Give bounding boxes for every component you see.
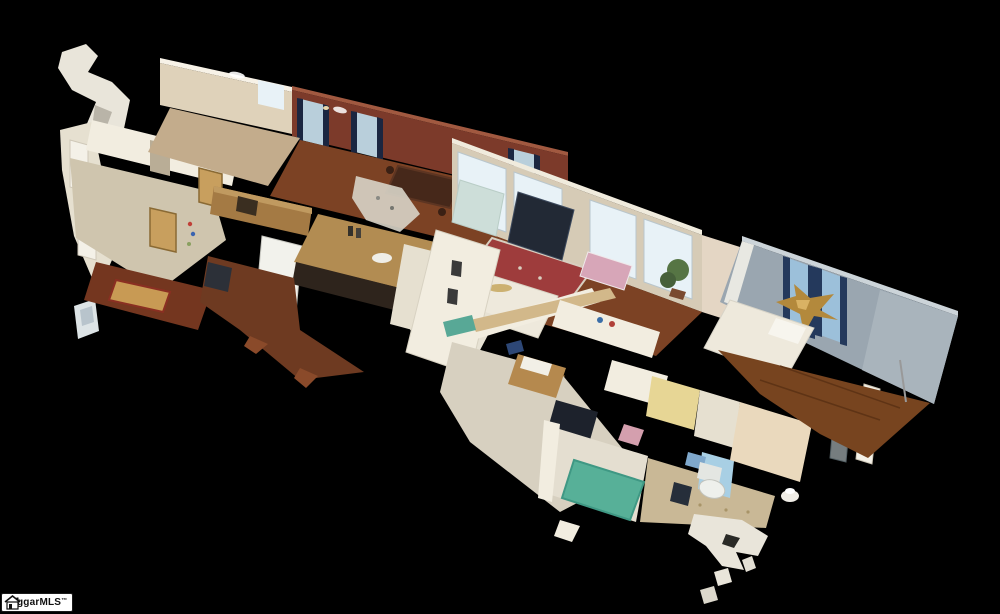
- curtain-maroon-1r: [323, 104, 329, 148]
- curtain-maroon-2l: [351, 111, 357, 153]
- shelf-item-blue: [597, 317, 603, 323]
- watermark-text: ggarMLS™: [17, 598, 67, 608]
- dining-chair-1: [386, 166, 394, 174]
- curtain-maroon-2r: [377, 117, 383, 160]
- gray-curtain-2r: [840, 276, 847, 346]
- dollhouse-3d-view[interactable]: [0, 0, 1000, 614]
- watermark-logo: ggarMLS™: [1, 593, 73, 612]
- rug-motif-2: [538, 276, 542, 280]
- panel-art-frame-1: [451, 260, 462, 277]
- shelf-item-red: [609, 321, 615, 327]
- window-maroon-1: [301, 99, 325, 146]
- toilet-paper-roll: [785, 488, 795, 494]
- curtain-maroon-1l: [297, 98, 303, 141]
- mosaic-dot-2: [724, 508, 727, 511]
- potted-plant-2: [660, 272, 676, 288]
- scanner-artifact-green: [187, 242, 191, 246]
- rug-motif-1: [518, 266, 522, 270]
- window-maroon-2: [355, 112, 379, 158]
- scanner-artifact-blue: [191, 232, 195, 236]
- panel-art-frame-2: [447, 288, 458, 305]
- island-bottle-1: [348, 226, 353, 236]
- clutter-dot-1: [376, 196, 380, 200]
- dining-chair-3: [438, 208, 446, 216]
- watermark-tm: ™: [61, 598, 67, 604]
- oak-door-2: [150, 208, 176, 252]
- mosaic-dot-1: [698, 503, 701, 506]
- wall-sconce-glint: [323, 106, 329, 110]
- scanner-artifact-red: [188, 222, 192, 226]
- clutter-dot-2: [390, 206, 394, 210]
- island-bottle-2: [356, 228, 361, 238]
- island-bowl: [372, 253, 392, 263]
- screenshot-stage: ggarMLS™: [0, 0, 1000, 614]
- mosaic-dot-3: [746, 510, 749, 513]
